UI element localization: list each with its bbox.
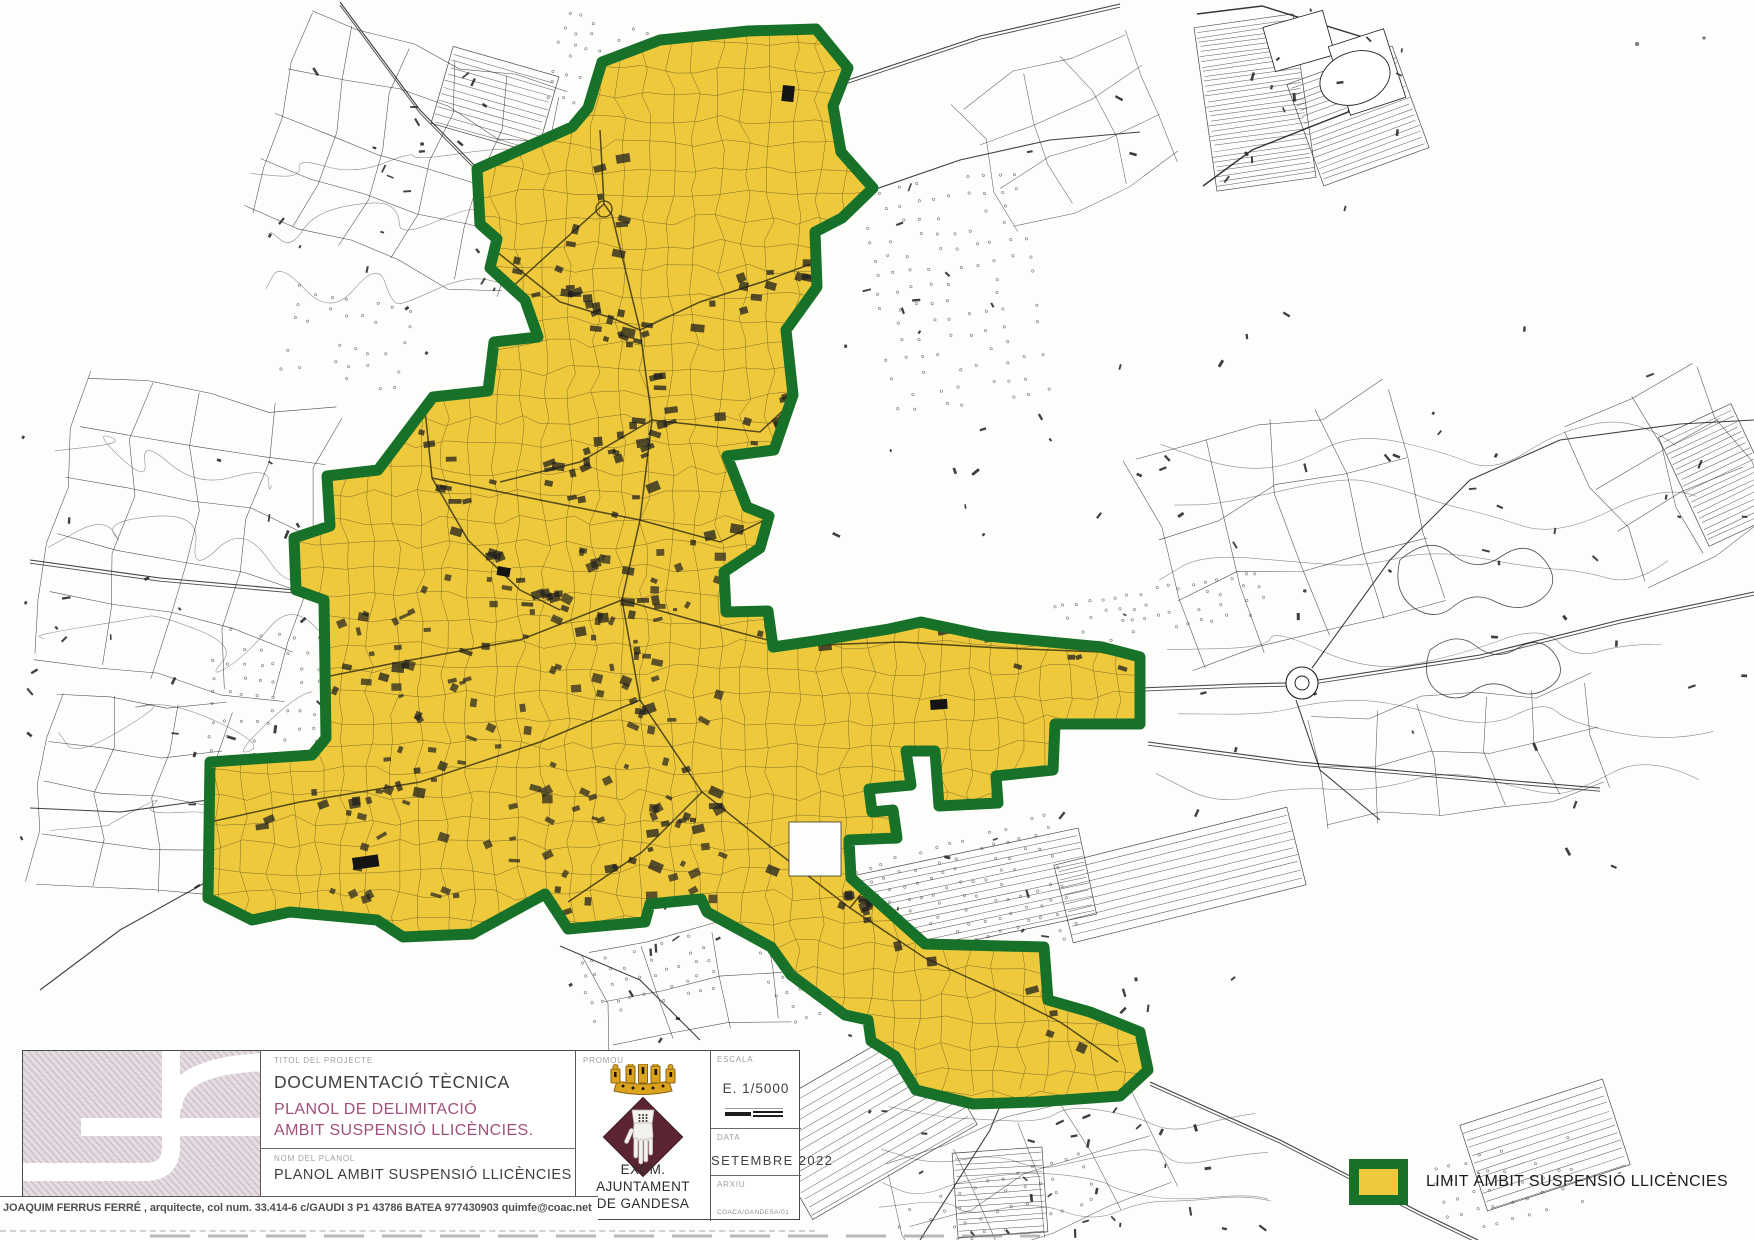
- file-row: ARXIU COACA/GANDESA/01: [711, 1176, 801, 1221]
- suspension-zone: [189, 14, 1151, 1104]
- legend-swatch-limit-ambit: [1349, 1159, 1408, 1205]
- scale-bar-icon: [725, 1108, 783, 1118]
- title-block: TITOL DEL PROJECTE DOCUMENTACIÓ TÈCNICA …: [22, 1050, 800, 1220]
- scan-speck: [1635, 42, 1639, 46]
- scanned-plan-page: LIMIT ÀMBIT SUSPENSIÓ LLICÈNCIES TITOL D…: [0, 0, 1754, 1240]
- title-block-project-cell: TITOL DEL PROJECTE DOCUMENTACIÓ TÈCNICA …: [261, 1051, 576, 1196]
- roundabout-exterior: [1286, 667, 1318, 699]
- legend-label: LIMIT ÀMBIT SUSPENSIÓ LLICÈNCIES: [1426, 1173, 1728, 1191]
- scan-underline: [0, 1230, 815, 1232]
- date-row: DATA SETEMBRE 2022: [711, 1129, 801, 1176]
- date-label: DATA: [717, 1133, 740, 1142]
- scale-label: ESCALA: [717, 1055, 753, 1064]
- file-value: COACA/GANDESA/01: [717, 1209, 789, 1216]
- industrial-loops: [1398, 545, 1561, 698]
- top-right-map-fragment: [1194, 0, 1429, 211]
- promoter-name-line1: EXCM. AJUNTAMENT: [576, 1161, 710, 1195]
- plan-name: PLANOL AMBIT SUSPENSIÓ LLICÈNCIES: [274, 1167, 572, 1183]
- title-block-divider: [261, 1148, 575, 1149]
- plan-label: NOM DEL PLANOL: [274, 1154, 355, 1163]
- project-label: TITOL DEL PROJECTE: [274, 1056, 575, 1065]
- architect-strip: JOAQUIM FERRUS FERRÉ , arquitecte, col n…: [0, 1196, 598, 1222]
- architect-line: JOAQUIM FERRUS FERRÉ , arquitecte, col n…: [3, 1202, 592, 1214]
- map-legend: LIMIT ÀMBIT SUSPENSIÓ LLICÈNCIES: [1349, 1159, 1728, 1205]
- scale-row: ESCALA E. 1/5000: [711, 1051, 801, 1129]
- project-title: DOCUMENTACIÓ TÈCNICA: [274, 1072, 575, 1093]
- project-subtitle-line1: PLANOL DE DELIMITACIÓ: [274, 1099, 575, 1120]
- title-block-scale-column: ESCALA E. 1/5000 DATA SETEMBRE 2022 ARXI…: [711, 1051, 801, 1221]
- architect-logo-monogram-icon: [23, 1051, 260, 1195]
- architect-logo: [23, 1051, 261, 1196]
- excluded-parcel: [789, 822, 841, 876]
- scale-value: E. 1/5000: [711, 1081, 801, 1096]
- legend-swatch-fill: [1359, 1169, 1398, 1195]
- project-subtitle: PLANOL DE DELIMITACIÓ AMBIT SUSPENSIÓ LL…: [274, 1099, 575, 1141]
- file-label: ARXIU: [717, 1180, 745, 1189]
- project-subtitle-line2: AMBIT SUSPENSIÓ LLICÈNCIES.: [274, 1120, 575, 1141]
- date-value: SETEMBRE 2022: [711, 1153, 801, 1168]
- scan-speck: [1702, 36, 1705, 39]
